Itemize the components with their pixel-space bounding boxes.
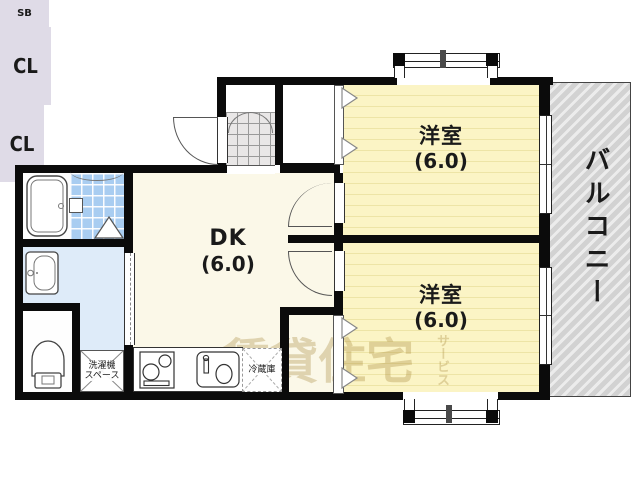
- balcony-sliding-door-2: [539, 267, 552, 365]
- wall: [539, 77, 550, 115]
- western-room-1-label: 洋室 (6.0): [343, 124, 539, 173]
- toilet-icon: [28, 336, 68, 391]
- window-top-jamb: [394, 65, 405, 78]
- refrigerator-space: 冷蔵庫: [242, 348, 282, 392]
- shoebox-label: SB: [17, 8, 32, 19]
- wall: [275, 85, 283, 165]
- wall: [280, 163, 340, 173]
- wall: [217, 77, 397, 85]
- wall: [539, 212, 550, 267]
- window-bottom-mullion: [446, 405, 452, 423]
- window-top-jamb: [487, 65, 498, 78]
- western-room-2-label: 洋室 (6.0): [343, 283, 539, 332]
- refrigerator-label: 冷蔵庫: [247, 365, 276, 375]
- bath-folding-door-icon: [94, 216, 124, 239]
- closet-1-label: CL: [13, 54, 38, 78]
- western-room-1-door-opening: [334, 183, 345, 223]
- wall: [280, 307, 342, 315]
- watermark-subtext: サービス: [432, 334, 451, 386]
- dk-label: DK (6.0): [158, 226, 298, 276]
- entrance-opening: [217, 117, 228, 163]
- wall: [334, 243, 343, 251]
- kitchen-sink-icon: [196, 351, 240, 388]
- washing-machine-label: 洗濯機スペース: [84, 361, 121, 381]
- window-bottom-end: [486, 410, 498, 423]
- bath-control-panel: [69, 198, 83, 213]
- window-top-end: [393, 53, 405, 66]
- wall: [334, 173, 343, 183]
- closet-door-chevron: [341, 367, 359, 389]
- window-top-mullion: [440, 50, 446, 68]
- closet-door-chevron: [341, 87, 359, 109]
- wall: [217, 85, 226, 117]
- bathtub-icon: [26, 175, 68, 237]
- wall: [124, 345, 133, 392]
- shoebox: SB: [0, 0, 49, 27]
- window-bottom-end: [403, 410, 415, 423]
- stove-icon: [139, 351, 175, 389]
- wall: [539, 363, 550, 400]
- wall: [15, 239, 133, 247]
- window-top: [393, 53, 500, 68]
- entrance-door-arc: [173, 117, 218, 165]
- washbasin-icon: [25, 251, 59, 295]
- wall: [72, 303, 80, 392]
- balcony-sliding-door-1: [539, 115, 552, 214]
- wall: [288, 235, 550, 243]
- window-top-end: [486, 53, 498, 66]
- wall: [15, 165, 23, 400]
- wall: [217, 163, 226, 173]
- washing-machine-space: 洗濯機スペース: [80, 350, 124, 392]
- entrance-step: [226, 165, 275, 174]
- washroom-opening: [124, 253, 135, 345]
- wall: [124, 165, 133, 253]
- balcony-label: バルコニー: [577, 146, 614, 346]
- wall: [15, 303, 80, 311]
- wall: [15, 392, 403, 400]
- closet-1: CL: [0, 27, 51, 105]
- floor-plan: 賃貸住宅 サービス SB CL CL: [0, 0, 640, 480]
- closet-2-label: CL: [10, 132, 35, 156]
